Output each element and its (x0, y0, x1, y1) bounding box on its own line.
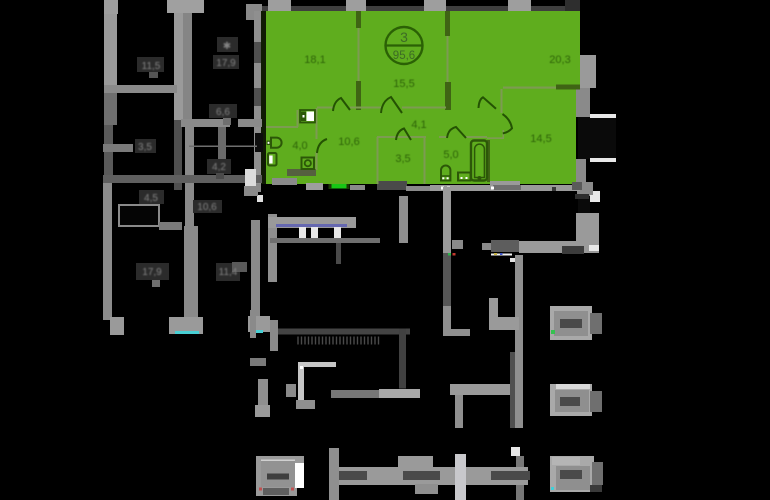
svg-text:4,0: 4,0 (292, 140, 307, 152)
svg-text:18,1: 18,1 (304, 54, 325, 66)
svg-text:11,5: 11,5 (142, 61, 161, 72)
svg-text:14,5: 14,5 (530, 133, 551, 145)
svg-text:95,6: 95,6 (393, 50, 415, 62)
svg-text:17,9: 17,9 (216, 58, 236, 69)
svg-text:20,3: 20,3 (549, 54, 570, 66)
svg-text:17,9: 17,9 (142, 267, 162, 278)
svg-text:✱: ✱ (223, 41, 231, 52)
svg-text:4,1: 4,1 (411, 119, 426, 131)
svg-text:10,6: 10,6 (197, 202, 217, 213)
svg-text:11,4: 11,4 (219, 267, 238, 278)
svg-text:4,2: 4,2 (212, 162, 226, 173)
svg-text:5,0: 5,0 (443, 149, 458, 161)
svg-text:15,5: 15,5 (393, 78, 414, 90)
svg-text:4,5: 4,5 (144, 193, 158, 204)
svg-text:3: 3 (400, 29, 408, 45)
svg-text:3,5: 3,5 (395, 153, 410, 165)
svg-text:10,6: 10,6 (338, 136, 359, 148)
svg-text:3,5: 3,5 (138, 142, 152, 153)
svg-text:6,6: 6,6 (216, 107, 230, 118)
